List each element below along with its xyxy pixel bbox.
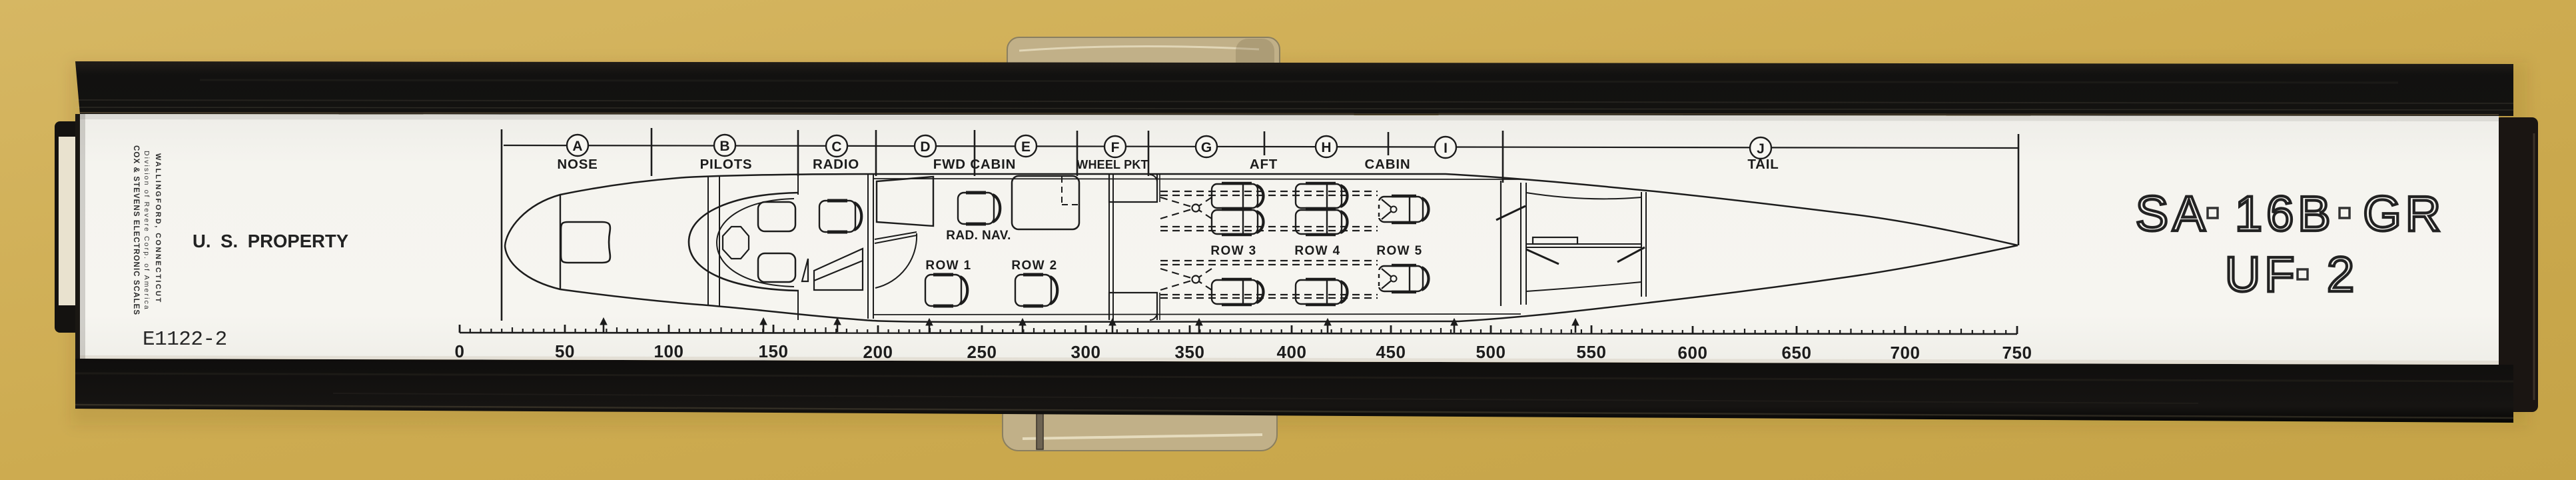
svg-text:400: 400 (1277, 342, 1307, 362)
svg-text:ROW 4: ROW 4 (1294, 244, 1340, 258)
svg-text:C: C (831, 139, 841, 155)
svg-text:200: 200 (863, 342, 893, 362)
svg-text:Division of Revere Corp. of Am: Division of Revere Corp. of America (143, 151, 151, 311)
svg-text:0: 0 (455, 341, 465, 361)
svg-text:UF 2: UF 2 (2225, 247, 2358, 302)
svg-text:CABIN: CABIN (1365, 157, 1411, 172)
svg-text:TAIL: TAIL (1747, 157, 1779, 172)
svg-text:E1122-2: E1122-2 (143, 328, 227, 351)
svg-text:750: 750 (2002, 343, 2032, 363)
svg-text:150: 150 (759, 341, 789, 361)
svg-text:500: 500 (1476, 342, 1506, 362)
svg-text:RADIO: RADIO (813, 157, 859, 172)
svg-text:ROW 3: ROW 3 (1210, 244, 1256, 258)
svg-text:PILOTS: PILOTS (700, 157, 753, 172)
svg-text:B: B (719, 139, 729, 154)
svg-text:SA 16B GR: SA 16B GR (2136, 186, 2445, 241)
svg-text:RAD. NAV.: RAD. NAV. (946, 229, 1011, 243)
svg-text:H: H (1321, 140, 1331, 155)
svg-text:ROW 1: ROW 1 (925, 259, 971, 273)
svg-text:ROW 5: ROW 5 (1376, 244, 1422, 258)
svg-text:J: J (1757, 141, 1765, 157)
svg-text:AFT: AFT (1250, 157, 1278, 172)
svg-text:300: 300 (1071, 342, 1101, 362)
svg-text:FWD CABIN: FWD CABIN (933, 157, 1016, 172)
svg-text:700: 700 (1891, 343, 1921, 363)
svg-text:U. S. PROPERTY: U. S. PROPERTY (193, 231, 348, 251)
svg-text:250: 250 (967, 342, 997, 362)
svg-text:550: 550 (1577, 342, 1607, 362)
svg-text:600: 600 (1678, 343, 1708, 363)
svg-text:I: I (1444, 141, 1448, 156)
svg-text:NOSE: NOSE (557, 157, 598, 172)
svg-text:E: E (1021, 139, 1031, 155)
svg-text:G: G (1201, 140, 1212, 155)
svg-text:350: 350 (1175, 342, 1205, 362)
svg-text:50: 50 (555, 341, 575, 361)
svg-text:F: F (1111, 140, 1120, 155)
svg-text:100: 100 (654, 341, 684, 361)
svg-text:WALLINGFORD, CONNECTICUT: WALLINGFORD, CONNECTICUT (154, 153, 162, 304)
svg-text:D: D (920, 139, 930, 155)
svg-text:COX & STEVENS ELECTRONIC SCALE: COX & STEVENS ELECTRONIC SCALES (132, 145, 140, 315)
svg-text:450: 450 (1376, 342, 1406, 362)
svg-text:650: 650 (1782, 343, 1812, 363)
svg-text:A: A (572, 139, 582, 154)
svg-text:ROW 2: ROW 2 (1011, 259, 1057, 273)
svg-text:WHEEL PKT: WHEEL PKT (1076, 158, 1148, 171)
